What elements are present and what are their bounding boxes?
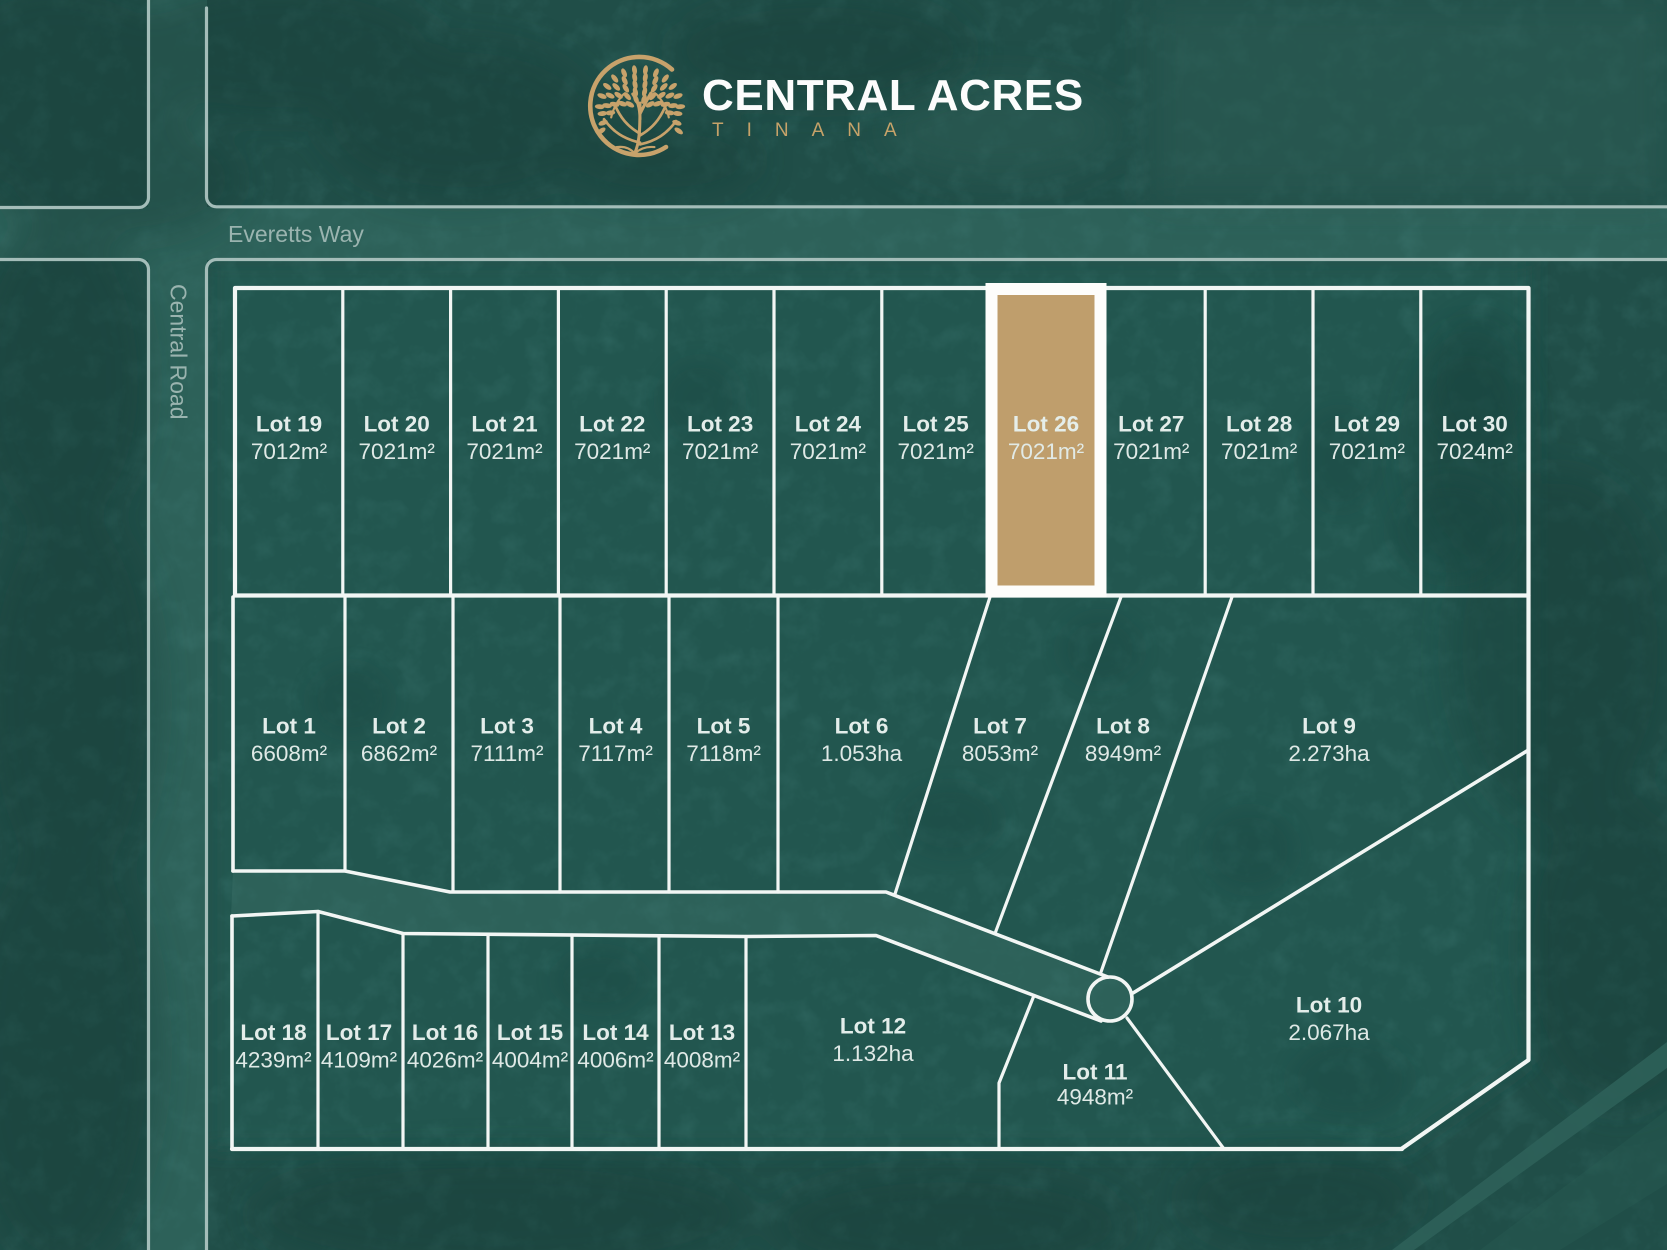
svg-text:Lot 15: Lot 15 — [497, 1020, 563, 1045]
svg-text:Lot 18: Lot 18 — [240, 1020, 306, 1045]
svg-text:Everetts Way: Everetts Way — [228, 221, 364, 247]
svg-text:Lot 6: Lot 6 — [835, 714, 889, 739]
svg-text:Lot 26: Lot 26 — [1013, 412, 1079, 437]
svg-text:7021m²: 7021m² — [574, 439, 651, 464]
svg-text:Lot 5: Lot 5 — [697, 714, 751, 739]
svg-text:Lot 10: Lot 10 — [1296, 993, 1362, 1018]
svg-text:Lot 23: Lot 23 — [687, 412, 753, 437]
svg-text:Lot 24: Lot 24 — [795, 412, 862, 437]
svg-text:6862m²: 6862m² — [361, 741, 438, 766]
svg-text:7021m²: 7021m² — [1329, 439, 1406, 464]
svg-text:Lot 1: Lot 1 — [262, 714, 316, 739]
svg-text:Lot 30: Lot 30 — [1442, 412, 1508, 437]
svg-text:CENTRAL ACRES: CENTRAL ACRES — [702, 71, 1084, 120]
svg-text:6608m²: 6608m² — [251, 741, 328, 766]
svg-text:Lot 2: Lot 2 — [372, 714, 426, 739]
svg-text:4948m²: 4948m² — [1057, 1085, 1134, 1110]
svg-text:4026m²: 4026m² — [407, 1048, 484, 1073]
svg-text:Lot 12: Lot 12 — [840, 1014, 906, 1039]
svg-text:7117m²: 7117m² — [578, 741, 653, 766]
svg-text:Lot 7: Lot 7 — [973, 714, 1027, 739]
svg-text:7111m²: 7111m² — [471, 741, 544, 766]
svg-text:7021m²: 7021m² — [682, 439, 759, 464]
svg-text:Lot 29: Lot 29 — [1334, 412, 1400, 437]
svg-text:Lot 27: Lot 27 — [1118, 412, 1184, 437]
svg-text:TINANA: TINANA — [712, 120, 920, 141]
svg-text:7024m²: 7024m² — [1437, 439, 1514, 464]
svg-text:1.132ha: 1.132ha — [832, 1041, 914, 1066]
svg-text:Lot 19: Lot 19 — [256, 412, 322, 437]
svg-text:4004m²: 4004m² — [492, 1048, 569, 1073]
svg-text:4239m²: 4239m² — [235, 1048, 312, 1073]
svg-text:4006m²: 4006m² — [577, 1048, 654, 1073]
svg-text:8949m²: 8949m² — [1085, 741, 1162, 766]
svg-text:7021m²: 7021m² — [1008, 439, 1085, 464]
svg-text:7118m²: 7118m² — [686, 741, 761, 766]
svg-text:7021m²: 7021m² — [898, 439, 975, 464]
svg-text:7012m²: 7012m² — [251, 439, 328, 464]
svg-text:Lot 3: Lot 3 — [480, 714, 534, 739]
svg-text:Lot 20: Lot 20 — [364, 412, 430, 437]
svg-text:Lot 22: Lot 22 — [579, 412, 645, 437]
svg-text:Lot 21: Lot 21 — [471, 412, 537, 437]
svg-text:Lot 4: Lot 4 — [589, 714, 643, 739]
svg-text:Lot 28: Lot 28 — [1226, 412, 1292, 437]
svg-text:7021m²: 7021m² — [359, 439, 436, 464]
svg-text:Lot 9: Lot 9 — [1302, 714, 1356, 739]
svg-text:7021m²: 7021m² — [1221, 439, 1298, 464]
svg-text:Lot 13: Lot 13 — [669, 1020, 735, 1045]
svg-text:4109m²: 4109m² — [321, 1048, 398, 1073]
svg-text:Lot 8: Lot 8 — [1096, 714, 1150, 739]
svg-text:4008m²: 4008m² — [664, 1048, 741, 1073]
svg-text:2.067ha: 2.067ha — [1288, 1020, 1370, 1045]
svg-text:Central Road: Central Road — [166, 284, 192, 420]
svg-text:7021m²: 7021m² — [790, 439, 867, 464]
svg-text:8053m²: 8053m² — [962, 741, 1039, 766]
svg-text:7021m²: 7021m² — [466, 439, 543, 464]
svg-text:Lot 17: Lot 17 — [326, 1020, 392, 1045]
svg-text:Lot 16: Lot 16 — [412, 1020, 478, 1045]
svg-text:1.053ha: 1.053ha — [821, 741, 903, 766]
svg-text:Lot 11: Lot 11 — [1062, 1060, 1127, 1085]
svg-text:Lot 25: Lot 25 — [903, 412, 969, 437]
svg-text:7021m²: 7021m² — [1113, 439, 1190, 464]
svg-text:2.273ha: 2.273ha — [1288, 741, 1370, 766]
svg-text:Lot 14: Lot 14 — [582, 1020, 649, 1045]
